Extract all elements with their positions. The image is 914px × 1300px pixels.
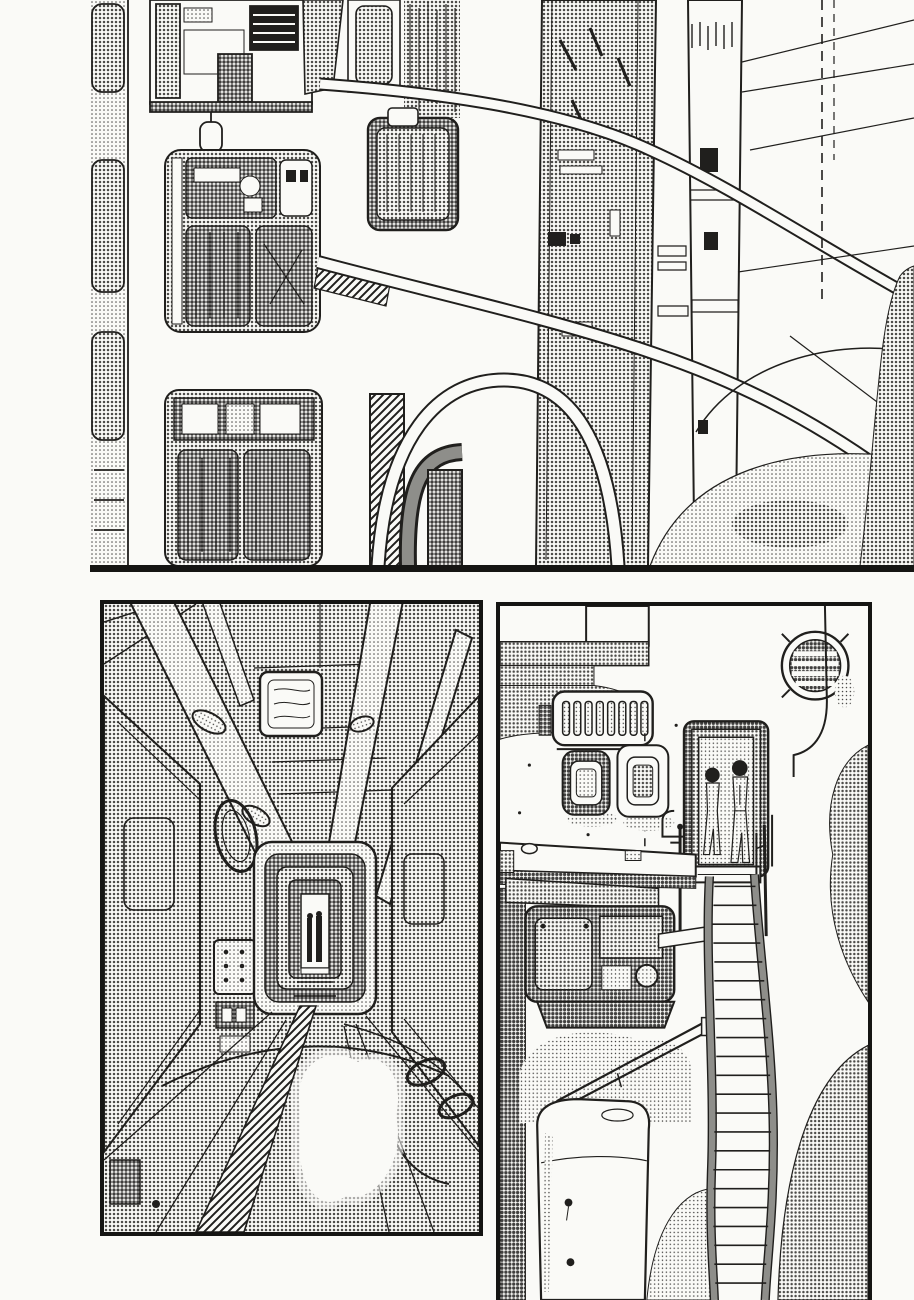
switch-plate — [617, 745, 668, 817]
white-tank — [537, 1099, 649, 1300]
switch-plate — [563, 751, 610, 815]
central-tower — [536, 0, 656, 566]
slotted-grille — [553, 692, 653, 750]
white-tower — [688, 0, 742, 522]
panel-bottom-rule — [90, 565, 914, 572]
nested-doorway — [254, 842, 376, 1014]
stairway-art — [500, 606, 868, 1300]
ceiling-vent — [260, 672, 322, 736]
lower-module-bays — [165, 390, 322, 566]
megastructure-art — [90, 0, 914, 572]
manga-page — [0, 0, 914, 1300]
dark-module — [368, 108, 458, 230]
pod-column — [90, 0, 128, 566]
panel-corridor — [100, 600, 483, 1236]
corridor-art — [104, 604, 479, 1232]
panel-stairway — [496, 602, 872, 1300]
panel-megastructure — [90, 0, 914, 572]
pipe-module — [408, 452, 462, 566]
module-grid — [165, 150, 320, 332]
